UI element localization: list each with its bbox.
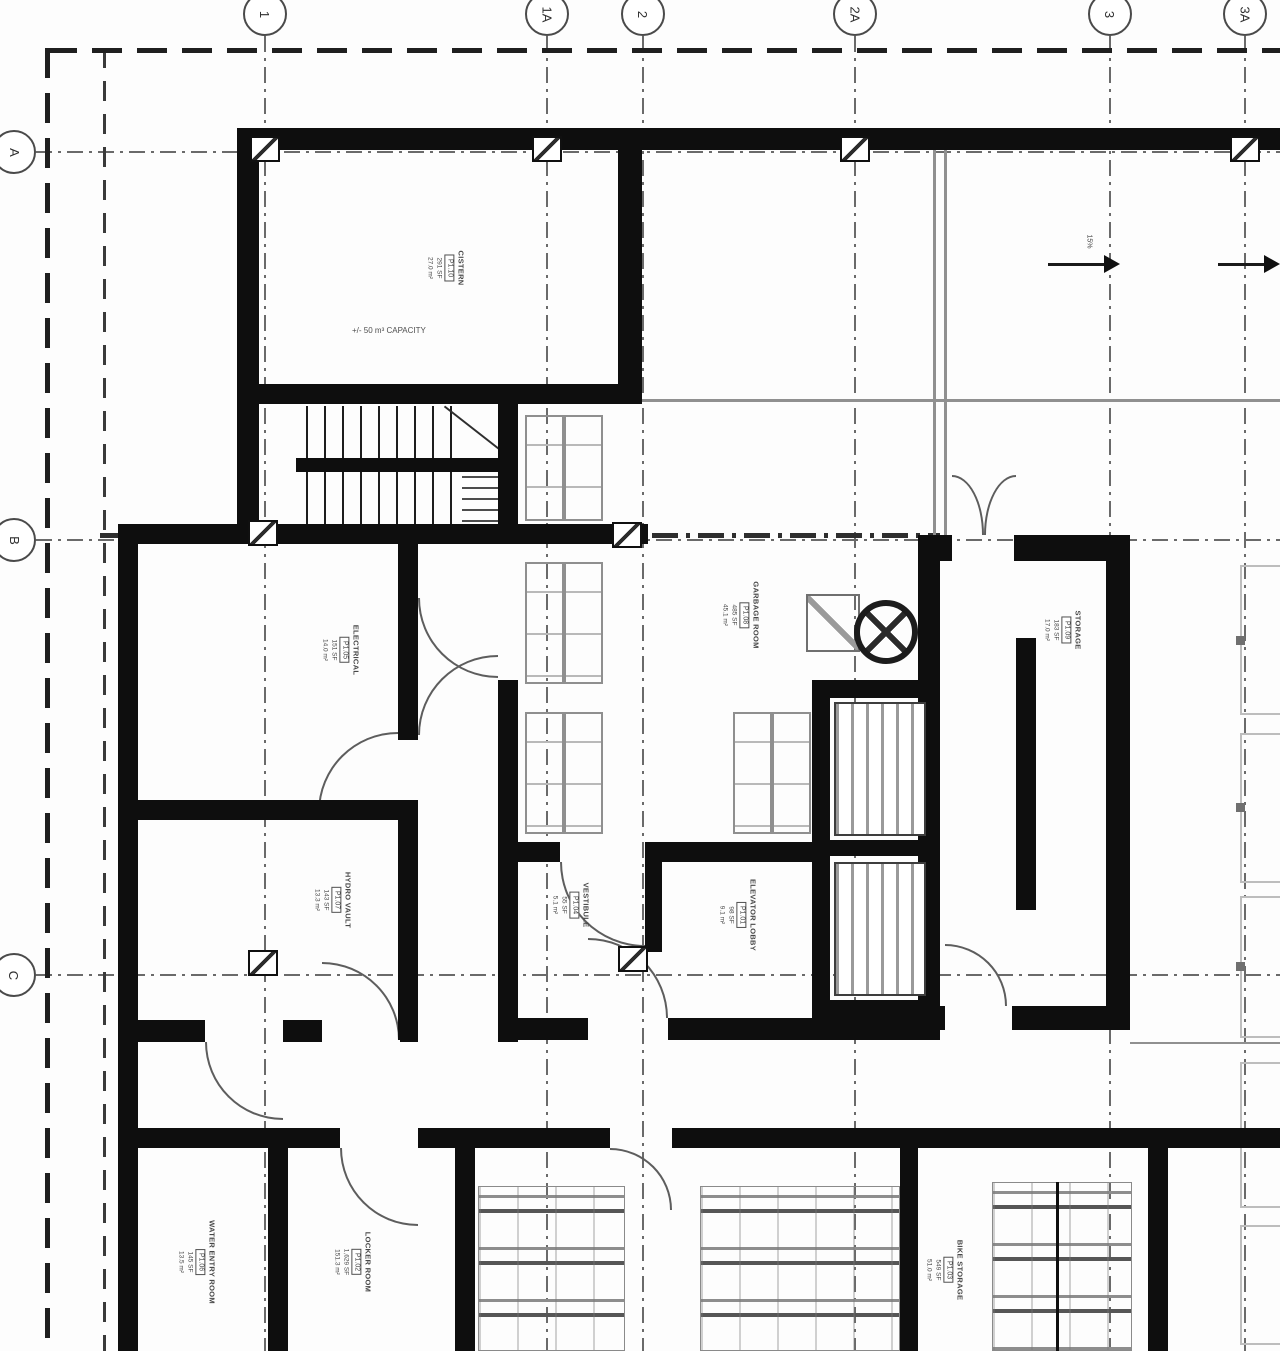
wall-storage-east <box>1106 535 1130 1030</box>
wall-cistern-south <box>237 384 642 404</box>
wall-bikestorage-east <box>1148 1128 1168 1351</box>
room-area-m2: 51.0 m² <box>925 1259 932 1281</box>
rack-divider-line <box>1056 1182 1059 1351</box>
room-label-water: WATER ENTRY ROOM P1.06 145 SF 13.5 m² <box>177 1220 216 1304</box>
garage-divider-line-a <box>933 150 936 535</box>
grid-bubble-3a: 3A <box>1223 0 1267 36</box>
wall-lobby-south-b <box>668 1018 940 1040</box>
wall-locker-bike <box>455 1128 475 1351</box>
garage-divider-line-b <box>944 150 947 535</box>
column-marker <box>618 946 648 972</box>
room-area-sf: 145 SF <box>186 1252 193 1273</box>
elevator-car <box>834 702 926 836</box>
parking-stall <box>1240 1225 1280 1345</box>
room-area-m2: 27.0 m² <box>426 257 433 279</box>
grid-line-c <box>36 974 1280 976</box>
grid-bubble-label: 1 <box>257 10 272 17</box>
ramp-arrow-head <box>1264 255 1280 273</box>
corridor-edge-line <box>1130 1042 1280 1044</box>
room-label-bike: BIKE STORAGE P1.03 549 SF 51.0 m² <box>925 1240 964 1301</box>
door-arc-bike-aisle <box>610 1148 672 1210</box>
grid-bubble-a: A <box>0 130 36 174</box>
room-name: STORAGE <box>1073 610 1081 649</box>
wall-hydro-south-a <box>118 1020 205 1042</box>
room-name: WATER ENTRY ROOM <box>207 1220 215 1304</box>
room-number: P1.07 <box>331 887 341 913</box>
door-arc <box>418 655 498 735</box>
ramp-arrow-line <box>1218 263 1270 266</box>
wall-bottom-north-a <box>118 1128 340 1148</box>
stair-landing-treads <box>462 476 498 530</box>
grid-line-1 <box>264 36 266 1351</box>
room-number: P1.06 <box>195 1249 205 1275</box>
room-name: CISTERN <box>456 250 464 285</box>
stair-treads-lower <box>306 472 462 530</box>
stall-tick <box>1236 636 1245 645</box>
room-area-sf: 98 SF <box>727 906 734 923</box>
room-label-hydro: HYDRO VAULT P1.07 143 SF 13.3 m² <box>313 872 352 928</box>
grid-bubble-label: 3 <box>1102 10 1117 17</box>
grid-bubble-label: A <box>6 148 21 157</box>
wall-hydro-south-c <box>400 1020 418 1042</box>
door-arc-storage-double-left <box>952 475 984 535</box>
wall-shaft-mid <box>826 840 926 856</box>
room-label-storage: STORAGE P1.09 183 SF 17.0 m² <box>1043 610 1082 649</box>
room-area-m2: 9.1 m² <box>718 906 725 924</box>
column-marker <box>250 136 280 162</box>
column-marker <box>1230 136 1260 162</box>
ramp-arrow-head <box>1104 255 1120 273</box>
room-area-sf: 55 SF <box>560 896 567 913</box>
door-arc-corridor <box>205 1042 283 1120</box>
room-area-m2: 5.1 m² <box>551 896 558 914</box>
room-area-sf: 549 SF <box>934 1260 941 1281</box>
setback-line-west <box>103 48 106 1351</box>
room-label-lobby: ELEVATOR LOBBY P1.01 98 SF 9.1 m² <box>718 879 757 951</box>
ramp-slope-label: 15% <box>1086 234 1093 248</box>
parking-stall <box>1240 733 1280 883</box>
column-marker <box>840 136 870 162</box>
stair-treads-upper <box>306 406 462 460</box>
room-name: HYDRO VAULT <box>343 872 351 928</box>
stall-tick <box>1236 962 1245 971</box>
property-line-top <box>47 48 1280 53</box>
elevator-car <box>834 862 926 996</box>
grid-bubble-label: 2 <box>635 10 650 17</box>
room-area-m2: 45.1 m² <box>721 604 728 626</box>
wall-electrical-hydro <box>118 800 418 820</box>
column-marker <box>612 522 642 548</box>
room-number: P1.01 <box>736 902 746 928</box>
wall-vestibule-lobby <box>645 862 662 952</box>
grid-line-a <box>36 151 1280 153</box>
bike-rack <box>700 1186 900 1351</box>
grid-bubble-b: B <box>0 518 36 562</box>
wall-bottom-north-b <box>418 1128 610 1148</box>
room-name: VESTIBULE <box>581 883 589 928</box>
grid-line-2 <box>642 36 644 1351</box>
room-number: P1.03 <box>943 1257 953 1283</box>
stall-tick <box>1236 803 1245 812</box>
wall-vestibule-north-a <box>505 842 560 862</box>
grid-bubble-1a: 1A <box>525 0 569 36</box>
room-area-sf: 183 SF <box>1052 620 1059 641</box>
bike-rack <box>478 1186 625 1351</box>
wall-corridor-east-upper <box>398 544 418 740</box>
grid-bubble-label: C <box>6 970 21 979</box>
grid-bubble-3: 3 <box>1088 0 1132 36</box>
room-name: ELECTRICAL <box>351 625 359 676</box>
room-label-cistern: CISTERN P1.10 291 SF 27.0 m² <box>426 250 465 285</box>
room-name: ELEVATOR LOBBY <box>748 879 756 951</box>
parking-stall <box>1240 896 1280 1038</box>
grid-bubble-label: B <box>6 536 21 545</box>
room-number: P1.05 <box>339 637 349 663</box>
garbage-bin <box>525 415 603 521</box>
room-label-vestibule: VESTIBULE P1.04 55 SF 5.1 m² <box>551 883 590 928</box>
grid-bubble-c: C <box>0 953 36 997</box>
grid-bubble-label: 1A <box>540 6 555 22</box>
room-number: P1.09 <box>1061 617 1071 643</box>
room-area-sf: 291 SF <box>435 258 442 279</box>
wall-west-upper <box>237 128 259 532</box>
garbage-bin <box>525 562 603 684</box>
wall-storage-south-a <box>918 1006 945 1030</box>
door-arc-storage-double-right <box>984 475 1016 535</box>
room-name: BIKE STORAGE <box>955 1240 963 1301</box>
ramp-arrow-line <box>1048 263 1108 266</box>
parking-stall <box>1240 565 1280 715</box>
floor-plan: 1 1A 2 2A 3 3A A B C <box>0 0 1280 1351</box>
grid-bubble-label: 2A <box>848 6 863 22</box>
wall-vestibule-north-b <box>645 842 812 862</box>
room-number: P1.04 <box>569 892 579 918</box>
room-number: P1.02 <box>351 1249 361 1275</box>
column-marker <box>532 136 562 162</box>
wall-north <box>237 128 1280 150</box>
wall-corridor-east-lower <box>398 812 418 1040</box>
room-number: P1.10 <box>444 255 454 281</box>
door-arc-locker <box>340 1148 418 1226</box>
wall-grid-b <box>118 524 648 544</box>
fan-drain-symbol <box>854 600 918 664</box>
grid-line-1a <box>546 36 548 1351</box>
property-line-west <box>45 48 50 1351</box>
grid-bubble-2: 2 <box>621 0 665 36</box>
wall-storage-south-b <box>1012 1006 1130 1030</box>
room-area-sf: 143 SF <box>322 890 329 911</box>
room-area-sf: 151 SF <box>330 640 337 661</box>
room-area-m2: 151.3 m² <box>333 1249 340 1275</box>
room-area-sf: 485 SF <box>730 605 737 626</box>
wall-storage-interior <box>1016 638 1036 910</box>
grid-bubble-1: 1 <box>243 0 287 36</box>
wall-west-lower <box>118 524 138 1351</box>
curb-line-garage <box>642 399 1280 402</box>
room-number: P1.08 <box>739 602 749 628</box>
room-name: GARBAGE ROOM <box>751 581 759 648</box>
column-marker <box>248 950 278 976</box>
room-area-m2: 14.0 m² <box>321 639 328 661</box>
room-label-electrical: ELECTRICAL P1.05 151 SF 14.0 m² <box>321 625 360 676</box>
door-arc-storage-interior <box>945 944 1007 1006</box>
room-area-m2: 13.5 m² <box>177 1251 184 1273</box>
room-label-garbage: GARBAGE ROOM P1.08 485 SF 45.1 m² <box>721 581 760 648</box>
grid-bubble-label: 3A <box>1238 6 1253 22</box>
stair-center-bar <box>296 458 512 472</box>
equipment-unit <box>806 594 860 652</box>
room-name: LOCKER ROOM <box>363 1232 371 1292</box>
garbage-bin <box>525 712 603 834</box>
room-area-sf: 1,629 SF <box>342 1249 349 1275</box>
wall-storage-north-a <box>918 535 952 561</box>
room-area-m2: 17.0 m² <box>1043 619 1050 641</box>
grid-bubble-2a: 2A <box>833 0 877 36</box>
wall-cistern-east <box>618 128 642 404</box>
room-area-m2: 13.3 m² <box>313 889 320 911</box>
wall-bikehall-bikestorage <box>900 1128 918 1351</box>
wall-water-locker <box>268 1128 288 1351</box>
wall-hydro-south-b <box>283 1020 322 1042</box>
wall-lobby-south-a <box>505 1018 588 1040</box>
cistern-capacity-note: +/- 50 m³ CAPACITY <box>352 326 426 335</box>
bike-rack <box>992 1182 1132 1351</box>
garbage-bin <box>733 712 811 834</box>
room-label-locker: LOCKER ROOM P1.02 1,629 SF 151.3 m² <box>333 1232 372 1292</box>
wall-bottom-north-d <box>1168 1128 1280 1148</box>
column-marker <box>248 520 278 546</box>
